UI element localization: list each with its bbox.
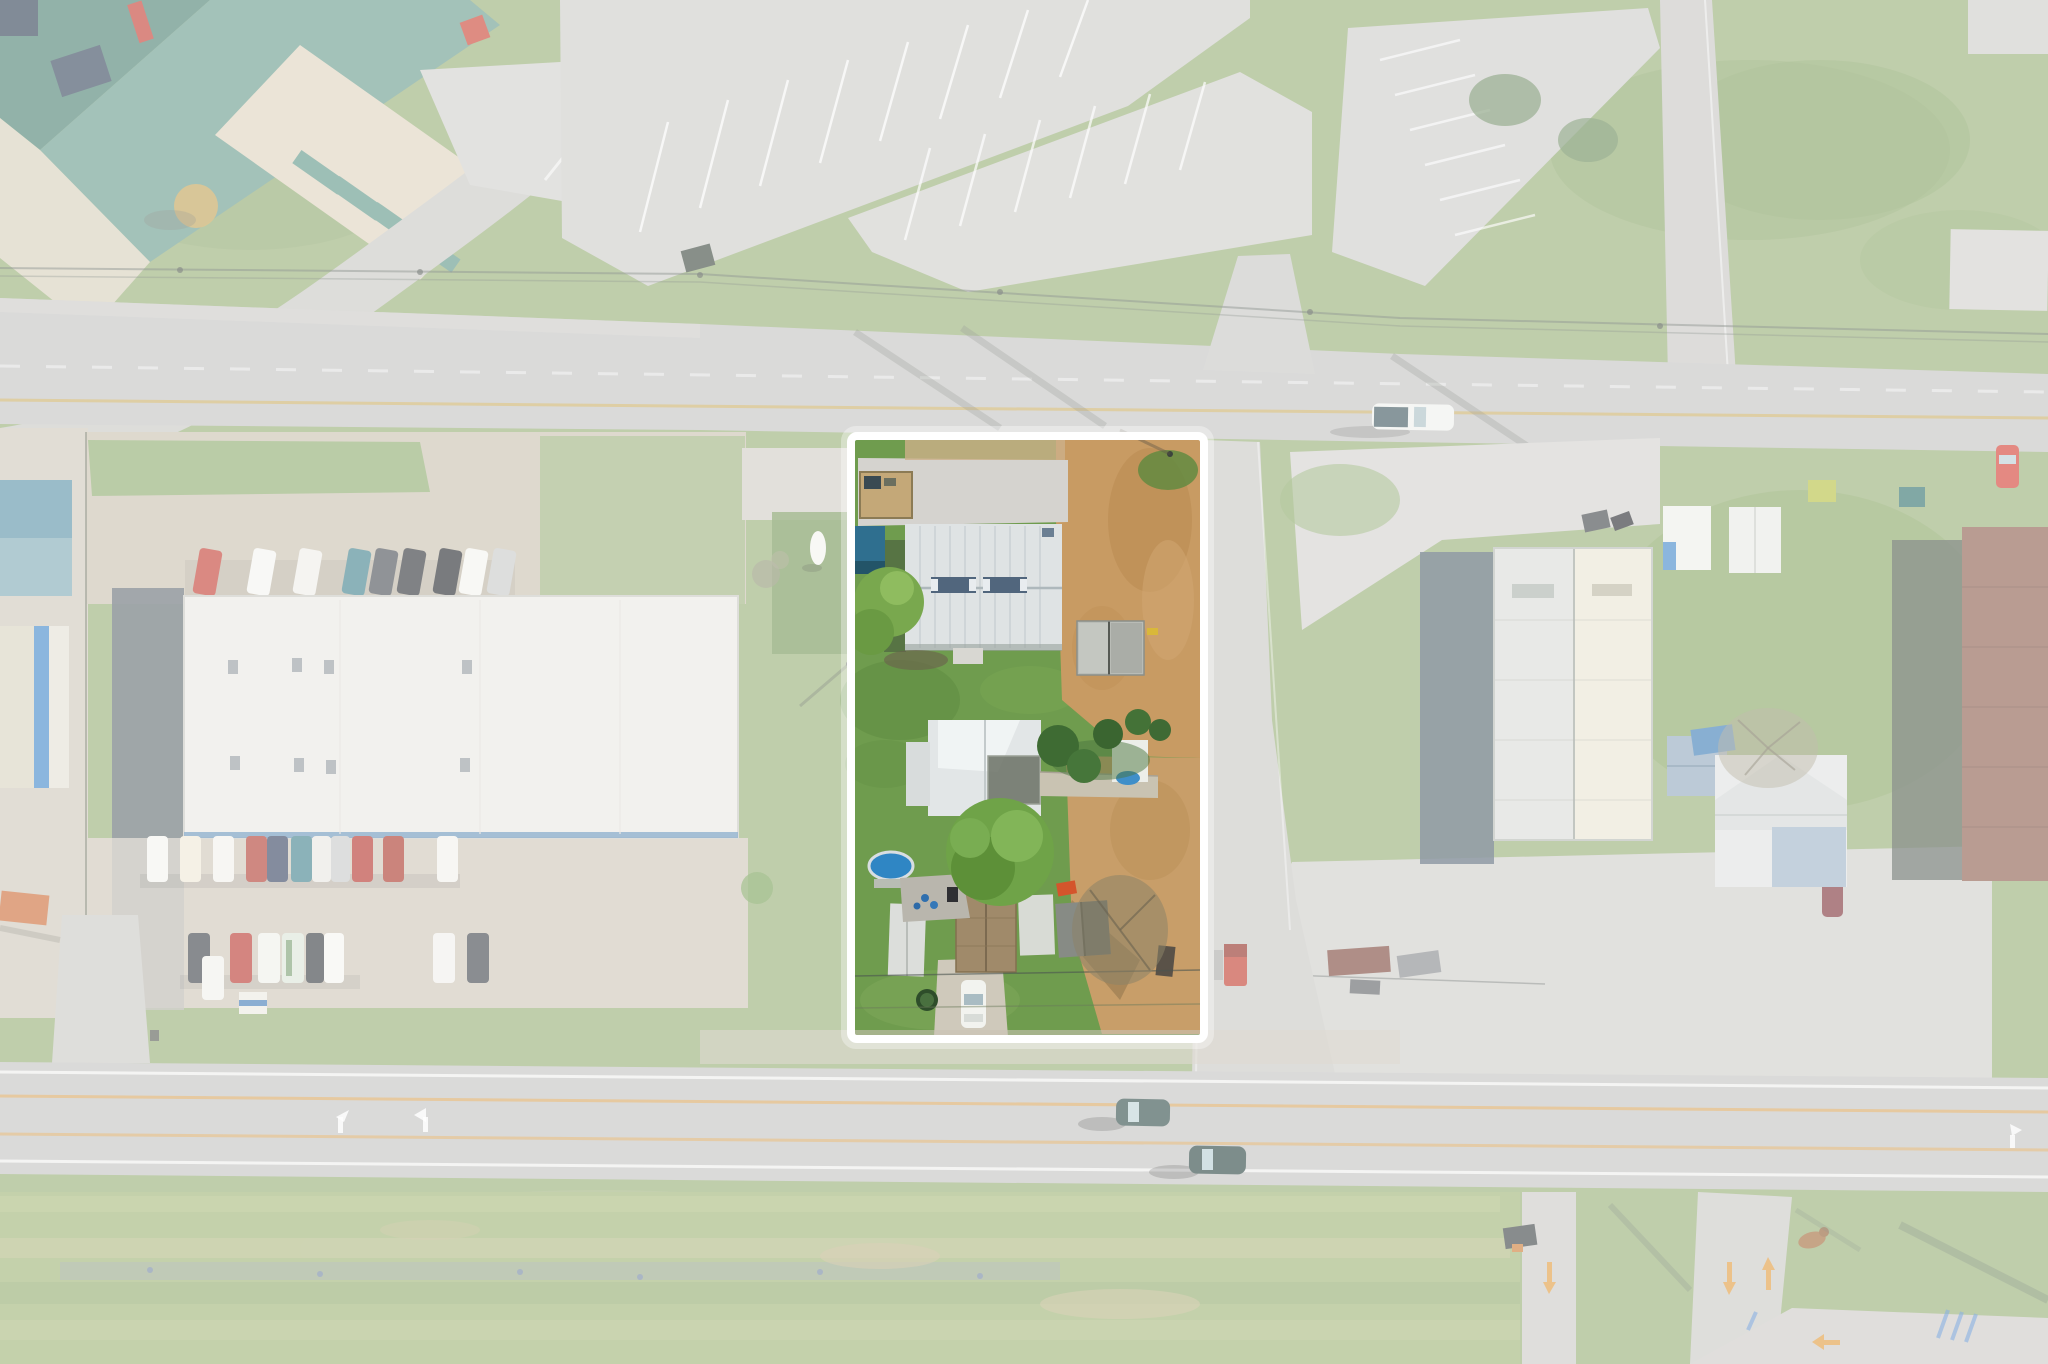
house2-wing (906, 742, 930, 806)
big-tree-3 (991, 810, 1043, 862)
grill (947, 887, 958, 902)
white-car-rear (964, 1014, 983, 1022)
house-eave-shadow (905, 644, 1062, 651)
tree-cluster-4 (1125, 709, 1151, 735)
tree-cluster-3 (1093, 719, 1123, 749)
gray-shed-right (1111, 623, 1142, 673)
aerial-scene (0, 0, 2048, 1364)
roof-vent-2-end-b (1020, 579, 1027, 591)
patio-item-2 (930, 901, 938, 909)
tree-cluster-2 (1067, 749, 1101, 783)
tree-cluster-5 (1149, 719, 1171, 741)
pen-object (864, 476, 881, 489)
corner-vent (1042, 528, 1054, 537)
tree-by-house-3 (880, 571, 914, 605)
gray-shed-left (1079, 623, 1108, 673)
yellow-item (1147, 628, 1158, 635)
patio-item-3 (914, 903, 921, 910)
shed-right-white (1018, 894, 1055, 955)
big-tree-4 (950, 818, 990, 858)
roof-vent-2-end-a (983, 579, 990, 591)
roof-vent-1-end-a (931, 579, 938, 591)
porch (988, 756, 1040, 804)
patio-clutter (884, 650, 948, 670)
patio-item-1 (921, 894, 929, 902)
white-car-glass (964, 994, 983, 1005)
aerial-property-photo (0, 0, 2048, 1364)
gravel-top (905, 440, 1065, 460)
stoop (953, 648, 983, 664)
green-ring-inner (920, 993, 934, 1007)
dirt-mottle-3 (1142, 540, 1194, 660)
roof-vent-1-end-b (969, 579, 976, 591)
pen-object-2 (884, 478, 896, 486)
